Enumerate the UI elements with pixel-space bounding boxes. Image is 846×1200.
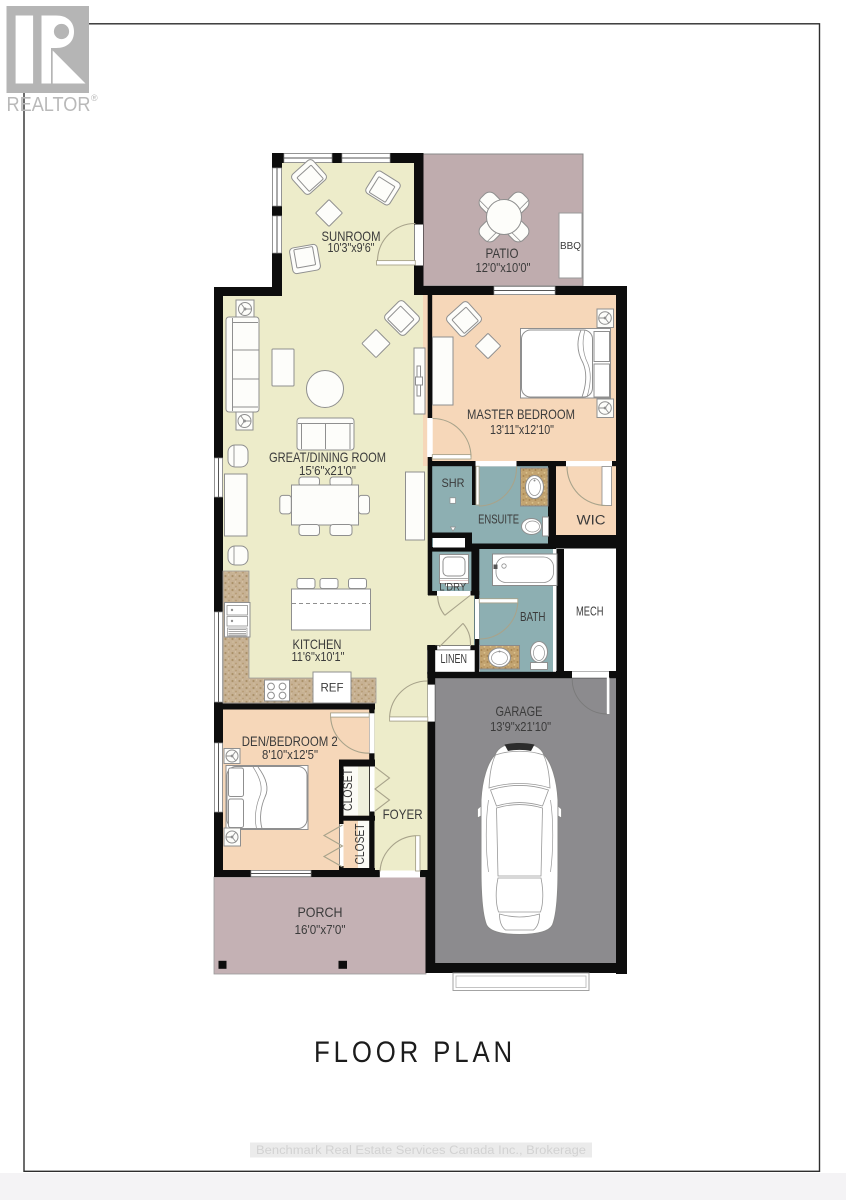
svg-text:ENSUITE: ENSUITE: [478, 513, 519, 527]
svg-text:8'10"x12'5": 8'10"x12'5": [262, 748, 318, 762]
svg-text:REF: REF: [321, 683, 344, 695]
svg-text:CLOSET: CLOSET: [341, 769, 355, 811]
svg-text:REALTOR: REALTOR: [7, 94, 91, 116]
svg-text:11'6"x10'1": 11'6"x10'1": [292, 650, 345, 664]
svg-text:CLOSET: CLOSET: [353, 823, 367, 864]
svg-text:MASTER BEDROOM: MASTER BEDROOM: [467, 406, 575, 422]
svg-text:WIC: WIC: [577, 513, 606, 528]
svg-text:BBQ: BBQ: [560, 240, 581, 252]
svg-text:13'11"x12'10": 13'11"x12'10": [490, 423, 554, 437]
svg-text:13'9"x21'10": 13'9"x21'10": [490, 720, 551, 734]
svg-text:DEN/BEDROOM 2: DEN/BEDROOM 2: [242, 733, 338, 749]
svg-text:12'0"x10'0": 12'0"x10'0": [476, 261, 531, 275]
svg-text:Benchmark Real Estate Services: Benchmark Real Estate Services Canada In…: [256, 1145, 586, 1157]
svg-text:GREAT/DINING ROOM: GREAT/DINING ROOM: [269, 449, 386, 465]
svg-text:15'6"x21'0": 15'6"x21'0": [299, 464, 356, 478]
svg-text:SHR: SHR: [442, 476, 465, 490]
svg-text:FLOOR PLAN: FLOOR PLAN: [314, 1036, 516, 1069]
svg-text:PATIO: PATIO: [486, 245, 519, 261]
svg-text:PORCH: PORCH: [298, 904, 343, 920]
svg-text:BATH: BATH: [520, 609, 546, 624]
svg-text:16'0"x7'0": 16'0"x7'0": [295, 923, 346, 937]
svg-text:10'3"x9'6": 10'3"x9'6": [328, 241, 375, 255]
svg-text:LINEN: LINEN: [441, 652, 468, 666]
svg-text:®: ®: [91, 93, 98, 103]
svg-text:FOYER: FOYER: [383, 806, 423, 822]
svg-text:MECH: MECH: [576, 604, 604, 619]
svg-text:GARAGE: GARAGE: [496, 703, 543, 719]
svg-text:L'DRY: L'DRY: [439, 582, 467, 594]
